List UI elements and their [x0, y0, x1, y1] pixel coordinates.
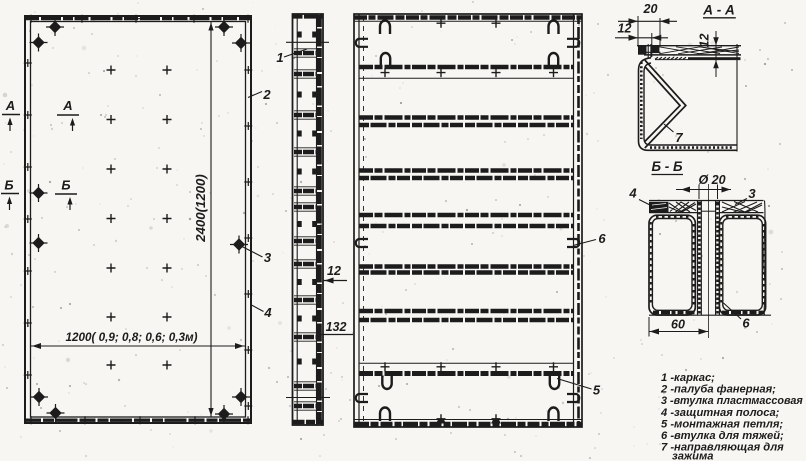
svg-text:6: 6 [742, 316, 750, 331]
svg-text:5 -монтажная петля;: 5 -монтажная петля; [661, 418, 783, 430]
svg-text:1 -каркас;: 1 -каркас; [661, 372, 715, 384]
svg-text:12: 12 [327, 264, 341, 278]
svg-text:6 -втулка для тяжей;: 6 -втулка для тяжей; [661, 430, 784, 442]
svg-text:7: 7 [675, 130, 683, 145]
svg-text:5: 5 [593, 383, 601, 398]
svg-text:20: 20 [643, 2, 658, 16]
svg-text:4: 4 [263, 305, 272, 320]
svg-text:4: 4 [628, 186, 637, 201]
svg-text:4 -защитная полоса;: 4 -защитная полоса; [660, 407, 780, 419]
svg-text:2400(1200): 2400(1200) [193, 174, 208, 242]
svg-text:132: 132 [326, 320, 347, 334]
svg-text:Б: Б [4, 178, 13, 193]
svg-text:1: 1 [276, 50, 283, 65]
svg-text:2 -палуба фанерная;: 2 -палуба фанерная; [660, 384, 776, 396]
svg-text:Ø 20: Ø 20 [698, 173, 725, 187]
svg-text:Б - Б: Б - Б [651, 159, 683, 174]
svg-text:2: 2 [262, 87, 271, 102]
svg-text:3: 3 [264, 250, 272, 265]
svg-text:А: А [62, 98, 72, 113]
svg-text:1200( 0,9; 0,8; 0,6; 0,3м): 1200( 0,9; 0,8; 0,6; 0,3м) [65, 331, 197, 344]
svg-text:12: 12 [618, 22, 632, 36]
svg-text:6: 6 [598, 231, 606, 246]
svg-text:60: 60 [671, 318, 685, 332]
svg-text:Б: Б [61, 178, 70, 193]
svg-text:А - А: А - А [702, 3, 735, 18]
svg-text:зажима: зажима [672, 450, 714, 461]
svg-text:3 -втулка пластмассовая: 3 -втулка пластмассовая [661, 395, 803, 407]
svg-text:3: 3 [748, 186, 756, 201]
svg-text:А: А [5, 98, 15, 113]
